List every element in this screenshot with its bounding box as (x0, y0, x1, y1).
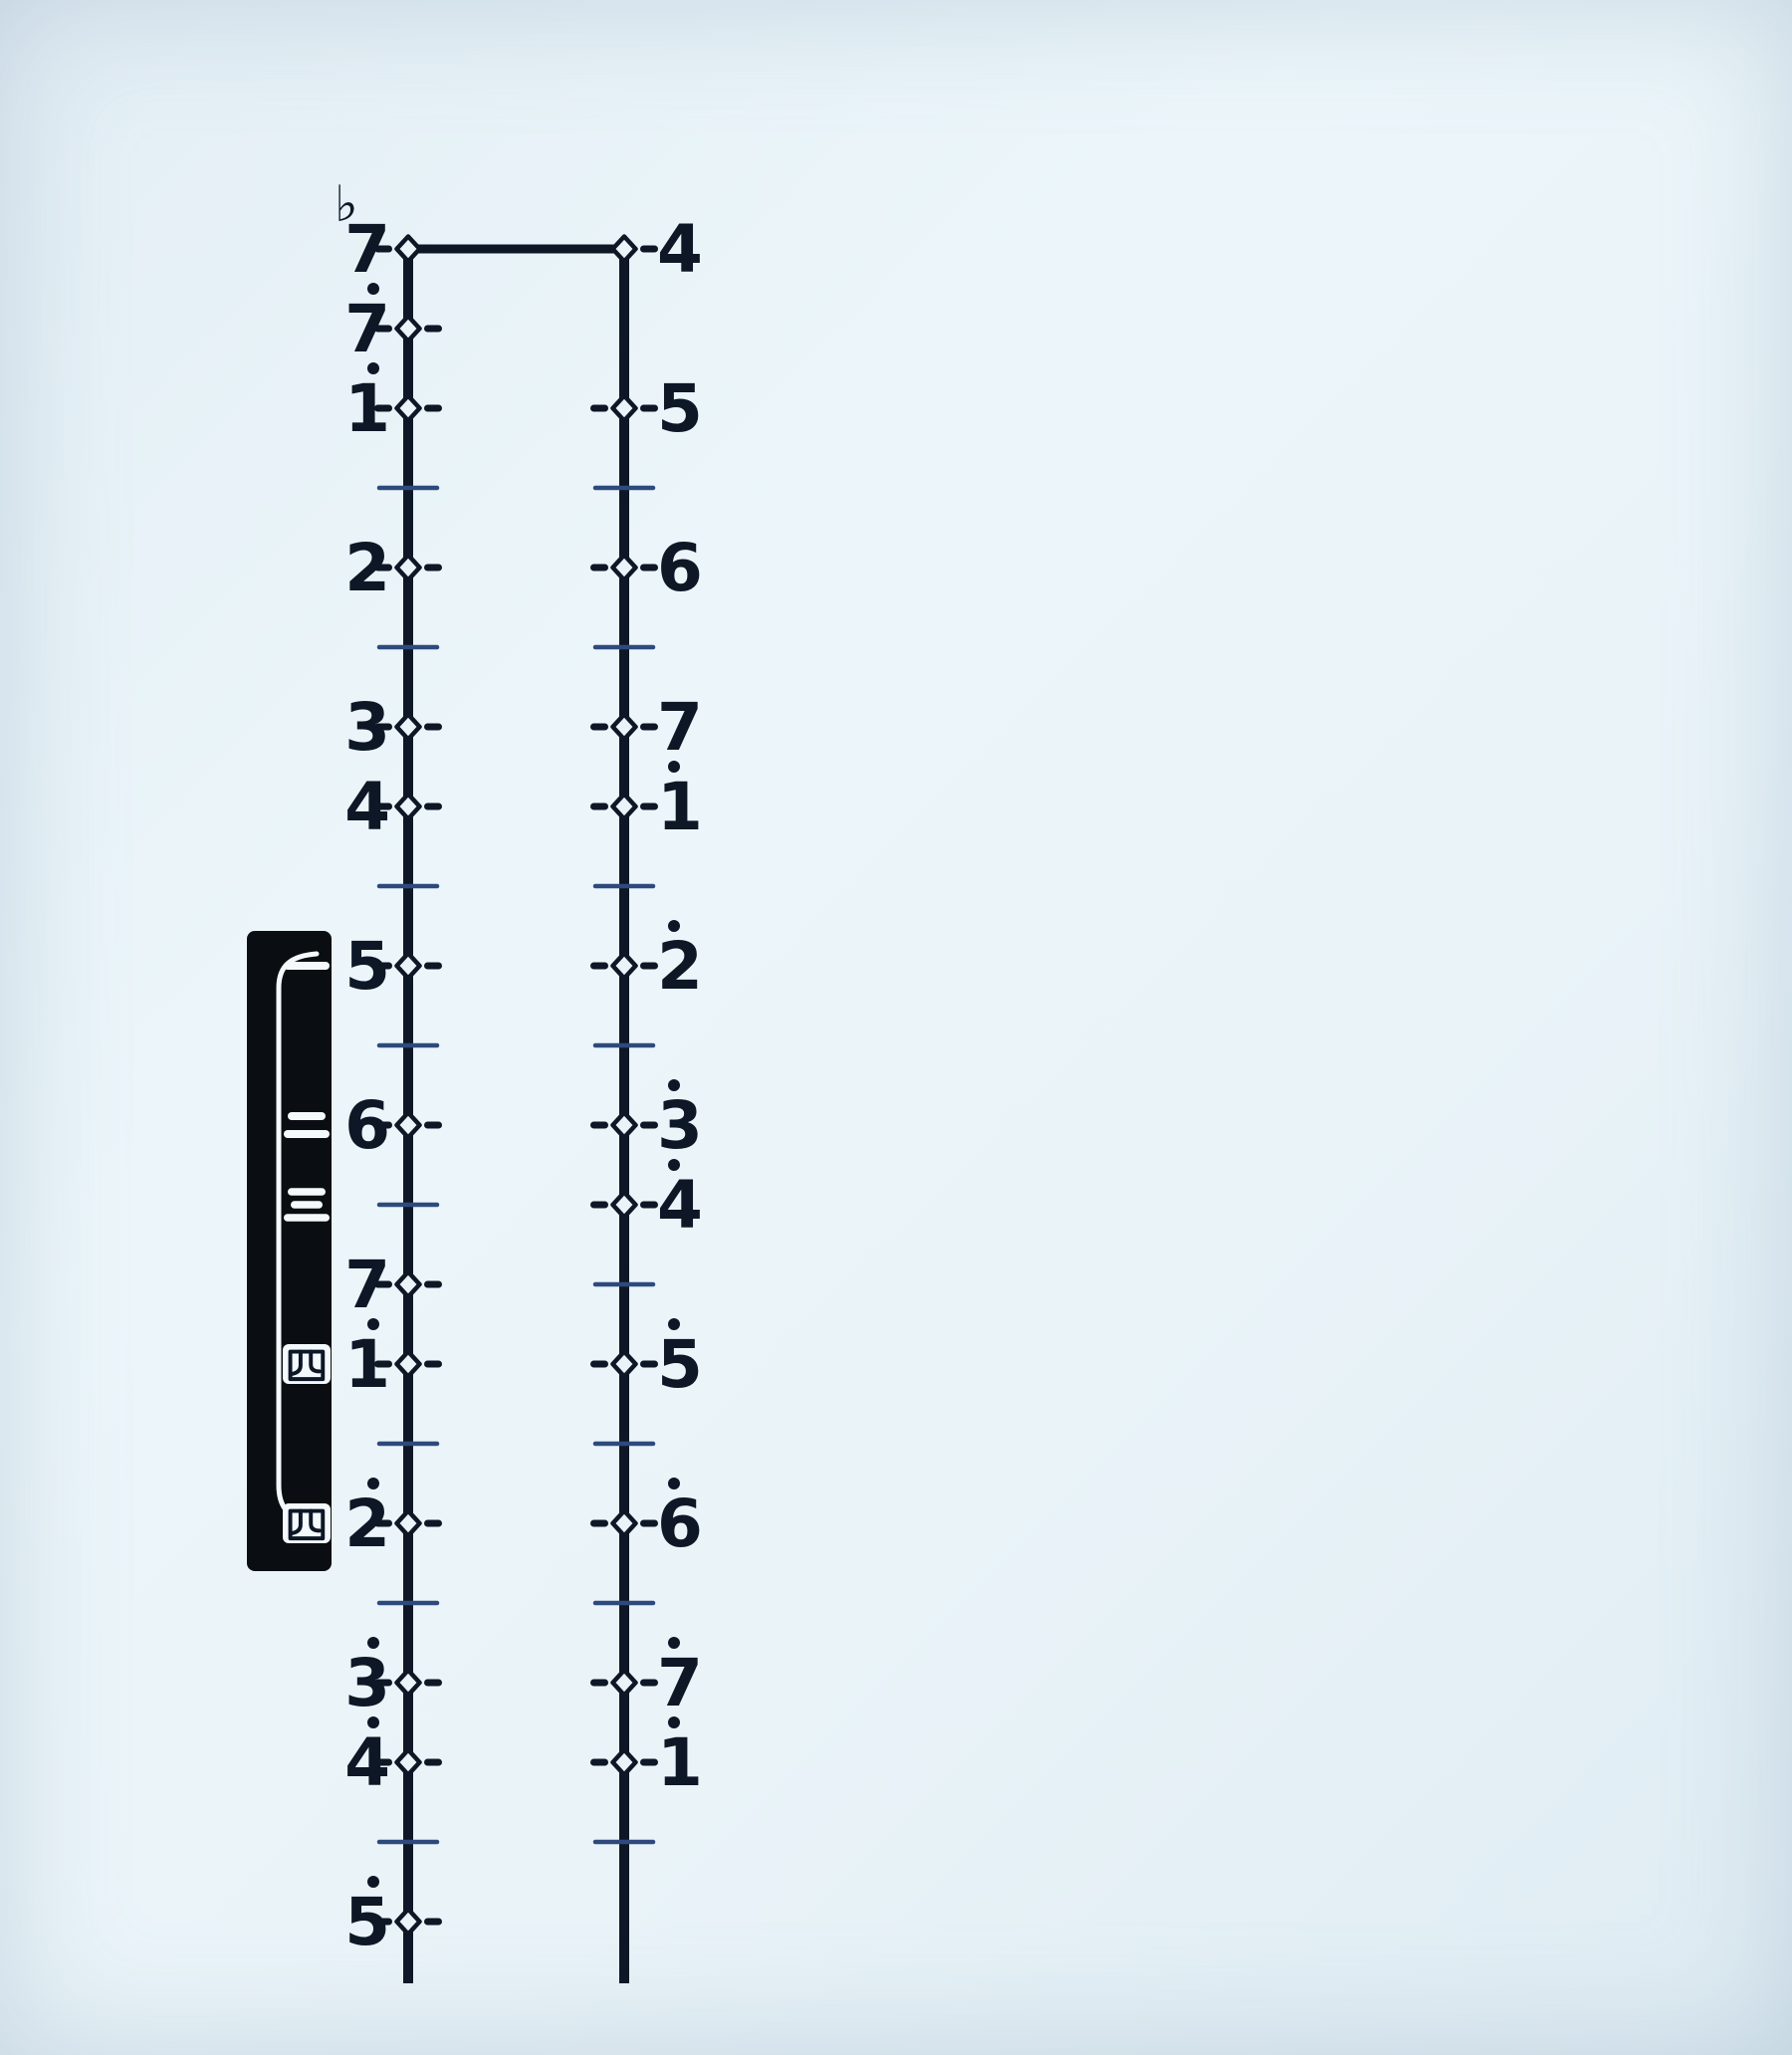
marker-diamond (397, 1910, 420, 1935)
marker-dash (590, 565, 608, 571)
note-number: 4 (657, 211, 703, 288)
marker-dash (590, 803, 608, 810)
high-octave-dot (668, 1637, 680, 1649)
note-number: 5 (657, 1326, 703, 1403)
marker-diamond (613, 715, 636, 740)
note-position: 4 (590, 211, 703, 288)
marker-diamond (397, 237, 420, 262)
note-number: 7 (657, 1645, 703, 1721)
high-octave-dot (367, 1318, 379, 1330)
marker-dash (424, 1919, 442, 1926)
note-number: 7 (344, 1247, 390, 1323)
finger-bar (291, 1201, 323, 1209)
marker-diamond (397, 1352, 420, 1377)
note-number: 1 (344, 1326, 390, 1403)
marker-dash (590, 1122, 608, 1129)
marker-diamond (613, 1193, 636, 1218)
marker-dash (640, 724, 658, 731)
fingering-diagram: 7♭7123456712345456712345671 (0, 0, 1792, 2055)
marker-dash (590, 724, 608, 731)
marker-diamond (613, 556, 636, 580)
marker-dash (640, 1759, 658, 1766)
note-number: 2 (657, 928, 703, 1005)
marker-diamond (397, 1750, 420, 1775)
note-number: 3 (344, 689, 390, 766)
marker-dash (424, 405, 442, 412)
high-octave-dot (668, 920, 680, 932)
note-position: 7 (344, 1247, 442, 1323)
marker-dash (590, 963, 608, 970)
marker-diamond (397, 715, 420, 740)
high-octave-dot (668, 1159, 680, 1171)
high-octave-dot (668, 1318, 680, 1330)
marker-diamond (397, 954, 420, 979)
finger-marker-4-inverted (283, 1344, 331, 1384)
note-number: 1 (344, 370, 390, 447)
marker-diamond (613, 795, 636, 819)
marker-dash (424, 1281, 442, 1288)
marker-dash (640, 803, 658, 810)
note-position: 2 (344, 1478, 442, 1562)
note-position: 6 (344, 1087, 442, 1164)
note-position: 7 (590, 689, 703, 766)
note-number: 2 (344, 530, 390, 606)
marker-diamond (397, 1272, 420, 1297)
marker-dash (640, 246, 658, 253)
note-number: 7 (344, 291, 390, 367)
marker-dash (590, 405, 608, 412)
note-number: 4 (657, 1167, 703, 1244)
marker-dash (424, 1759, 442, 1766)
marker-dash (424, 1680, 442, 1687)
marker-dash (640, 1680, 658, 1687)
marker-dash (590, 246, 608, 253)
high-octave-dot (367, 1637, 379, 1649)
marker-diamond (613, 1750, 636, 1775)
marker-diamond (613, 1671, 636, 1696)
marker-dash (424, 1122, 442, 1129)
high-octave-dot (668, 1478, 680, 1489)
marker-dash (424, 326, 442, 333)
marker-dash (424, 724, 442, 731)
note-position: 5 (344, 928, 442, 1005)
note-position: 4 (344, 1716, 442, 1801)
marker-dash (590, 1520, 608, 1527)
marker-dash (640, 1520, 658, 1527)
marker-diamond (397, 1671, 420, 1696)
high-octave-dot (367, 1876, 379, 1888)
note-position: 5 (344, 1876, 442, 1960)
note-number: 2 (344, 1485, 390, 1562)
high-octave-dot (668, 1716, 680, 1728)
high-octave-dot (367, 1716, 379, 1728)
note-position: 1 (590, 1716, 703, 1801)
finger-bar (288, 1112, 326, 1120)
marker-dash (640, 405, 658, 412)
note-position: 1 (344, 370, 442, 447)
marker-dash (424, 246, 442, 253)
erhu-fingering-chart-page: 7♭7123456712345456712345671 (0, 0, 1792, 2055)
note-number: 4 (344, 769, 390, 845)
note-number: 5 (344, 928, 390, 1005)
note-position: 5 (590, 370, 703, 447)
marker-diamond (613, 396, 636, 421)
marker-dash (590, 1680, 608, 1687)
marker-dash (640, 963, 658, 970)
finger-marker-4-inverted (283, 1503, 331, 1543)
marker-diamond (397, 317, 420, 342)
note-number: 5 (344, 1884, 390, 1960)
marker-dash (640, 1361, 658, 1368)
marker-diamond (397, 396, 420, 421)
marker-dash (640, 565, 658, 571)
note-number: 4 (344, 1724, 390, 1801)
note-position: 6 (590, 530, 703, 606)
high-octave-dot (367, 1478, 379, 1489)
finger-bar (284, 962, 330, 970)
marker-dash (590, 1202, 608, 1209)
note-position: 3 (590, 1079, 703, 1164)
note-position: 2 (344, 530, 442, 606)
high-octave-dot (668, 1079, 680, 1091)
note-position: 4 (590, 1159, 703, 1244)
marker-diamond (613, 237, 636, 262)
note-position: 6 (590, 1478, 703, 1562)
note-number: 1 (657, 1724, 703, 1801)
marker-diamond (613, 1352, 636, 1377)
marker-diamond (613, 1113, 636, 1138)
note-position: 7 (590, 1637, 703, 1721)
note-position: 7 (344, 291, 442, 374)
note-position: 5 (590, 1318, 703, 1403)
second-position-black-panel (247, 931, 332, 1571)
finger-bar (284, 1130, 330, 1138)
marker-dash (640, 1122, 658, 1129)
marker-dash (590, 1759, 608, 1766)
note-number: 3 (344, 1645, 390, 1721)
note-number: 3 (657, 1087, 703, 1164)
finger-marker-1-inverted (284, 962, 330, 970)
note-position: 2 (590, 920, 703, 1005)
marker-dash (590, 1361, 608, 1368)
marker-diamond (613, 954, 636, 979)
marker-diamond (397, 1511, 420, 1536)
marker-dash (424, 1520, 442, 1527)
marker-diamond (397, 1113, 420, 1138)
note-position: 3 (344, 1637, 442, 1721)
note-number: 5 (657, 370, 703, 447)
marker-dash (640, 1202, 658, 1209)
note-number: 7 (657, 689, 703, 766)
high-octave-dot (668, 761, 680, 773)
marker-dash (424, 1361, 442, 1368)
note-position: 1 (344, 1318, 442, 1403)
flat-sign: ♭ (335, 175, 358, 233)
note-position: 7♭ (335, 175, 442, 295)
marker-dash (424, 963, 442, 970)
note-position: 4 (344, 769, 442, 845)
marker-diamond (613, 1511, 636, 1536)
chart-E: 7♭7123456712345456712345671 (247, 175, 703, 1983)
note-position: 3 (344, 689, 442, 766)
finger-bar (284, 1214, 330, 1222)
marker-diamond (397, 556, 420, 580)
marker-diamond (397, 795, 420, 819)
note-number: 6 (657, 530, 703, 606)
note-number: 6 (344, 1087, 390, 1164)
finger-bar (288, 1188, 326, 1196)
note-position: 1 (590, 761, 703, 845)
marker-dash (424, 565, 442, 571)
note-number: 6 (657, 1485, 703, 1562)
note-number: 1 (657, 769, 703, 845)
marker-dash (424, 803, 442, 810)
